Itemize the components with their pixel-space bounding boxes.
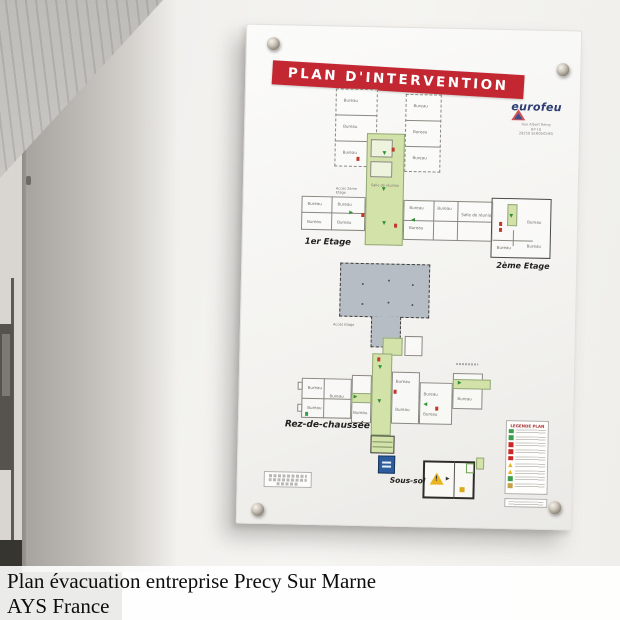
legend-text-bar — [508, 501, 543, 506]
legend-text-bar — [515, 463, 546, 468]
stair-corridor — [476, 457, 484, 469]
caption-bar: Plan évacuation entreprise Precy Sur Mar… — [0, 566, 620, 620]
legend-text-bar — [515, 450, 546, 455]
hazard-warning-icon — [430, 472, 444, 484]
legend-icon — [508, 442, 513, 447]
evac-arrow-icon — [509, 214, 513, 219]
evac-arrow-icon — [353, 395, 357, 400]
warehouse-block — [339, 263, 430, 319]
room-label: Bureau — [527, 244, 541, 248]
legend-title: LEGENDE PLAN — [509, 423, 546, 429]
room-label: Bureau — [344, 99, 358, 103]
room-label: Bureau — [437, 207, 451, 211]
legend-icon — [508, 463, 513, 468]
sign-text-bar — [382, 465, 391, 467]
extinguisher-icon — [435, 407, 438, 411]
access-second-label: Accès 2ème Etage — [336, 186, 364, 195]
room-label: Bureau — [409, 206, 423, 210]
legend-text-bar — [515, 429, 546, 434]
floor-label-first: 1er Etage — [305, 237, 351, 248]
room-label: Bureau — [413, 130, 427, 134]
room-label: Bureau — [337, 220, 351, 224]
room-label: Bureau — [414, 104, 428, 108]
room-label: Bureau — [527, 220, 541, 224]
evac-arrow-icon — [382, 221, 386, 226]
wall-fixture — [26, 176, 31, 185]
legend-reference-box — [504, 498, 547, 508]
evac-arrow-icon — [383, 151, 387, 156]
column-dot — [388, 280, 390, 282]
extinguisher-icon — [394, 390, 397, 394]
evac-arrow-icon — [377, 399, 381, 404]
small-annotation — [456, 363, 478, 365]
caption-subtitle: AYS France — [7, 594, 620, 619]
room-label: Bureau — [353, 411, 367, 415]
legend-text-bar — [514, 477, 545, 482]
document-cartouche — [264, 471, 312, 488]
column-dot — [411, 304, 413, 306]
evac-arrow-icon — [349, 211, 353, 216]
access-floor-label: Accès Etage — [333, 322, 357, 327]
column-dot — [412, 284, 414, 286]
extinguisher-icon — [392, 148, 395, 152]
legend-icon — [509, 429, 514, 434]
photo-scene: PLAN D'INTERVENTION eurofeu Rue Albert R… — [0, 0, 620, 620]
extinguisher-icon — [361, 213, 364, 217]
legend-text-bar — [514, 484, 545, 489]
cartouche-text-bar — [269, 478, 307, 481]
door-swing-icon — [466, 463, 474, 473]
legend-icon — [508, 449, 513, 454]
room-label: Bureau — [307, 202, 321, 206]
legend-icon — [508, 470, 513, 475]
room-label: Bureau — [343, 125, 357, 129]
room-label: Bureau — [308, 386, 322, 390]
column-dot — [362, 283, 364, 285]
room-label: Bureau — [343, 151, 357, 155]
direction-arrow-icon — [446, 477, 450, 482]
room-label: Bureau — [337, 202, 351, 206]
evac-arrow-icon — [382, 187, 386, 192]
room-block — [370, 161, 392, 177]
cartouche-text-bar — [269, 474, 307, 477]
intervention-plan-panel: PLAN D'INTERVENTION eurofeu Rue Albert R… — [236, 24, 582, 531]
meeting-room-label: Salle de réunion — [461, 213, 493, 218]
extinguisher-icon — [394, 224, 397, 228]
exit-stair — [370, 435, 394, 453]
first-aid-icon — [305, 412, 308, 416]
floor-plans: Bureau Bureau Bureau Bureau Bureau Burea… — [237, 25, 581, 530]
legend-text-bar — [515, 456, 546, 461]
column-dot — [361, 303, 363, 305]
floor-label-ground: Rez-de-chaussée — [285, 419, 370, 431]
floor-label-second: 2ème Etage — [496, 261, 550, 271]
legend-box: LEGENDE PLAN — [504, 420, 549, 495]
extinguisher-icon — [499, 222, 502, 226]
evac-arrow-icon — [423, 402, 427, 407]
extinguisher-icon — [356, 157, 359, 161]
room-label: Bureau — [457, 397, 471, 401]
dark-window-inner — [2, 334, 10, 396]
room-label: Bureau — [307, 220, 321, 224]
blue-info-sign — [378, 455, 395, 473]
legend-text-bar — [515, 443, 546, 448]
evac-arrow-icon — [411, 218, 415, 223]
room-label: Bureau — [423, 412, 437, 416]
room-label: Bureau — [497, 246, 511, 250]
floor-label-basement: Sous-sol — [390, 476, 426, 486]
legend-icon — [508, 456, 513, 461]
legend-icon — [508, 483, 513, 488]
extinguisher-icon — [499, 228, 502, 232]
hazard-small-icon — [460, 487, 465, 492]
cartouche-text-bar — [276, 482, 299, 485]
legend-icon — [508, 476, 513, 481]
room-label: Bureau — [307, 406, 321, 410]
room-block — [404, 336, 422, 356]
room-label: Bureau — [409, 226, 423, 230]
evac-arrow-icon — [378, 365, 382, 370]
room-label: Bureau — [424, 392, 438, 396]
sign-text-bar — [382, 461, 391, 463]
evac-arrow-icon — [458, 381, 462, 386]
legend-text-bar — [514, 470, 545, 475]
bay-window — [298, 382, 303, 390]
legend-text-bar — [515, 436, 546, 441]
legend-icon — [509, 436, 514, 441]
room-label: Bureau — [395, 408, 409, 412]
legend-row — [508, 482, 545, 490]
room-label: Bureau — [412, 156, 426, 160]
column-dot — [387, 302, 389, 304]
room-label: Bureau — [396, 380, 410, 384]
extinguisher-icon — [377, 357, 380, 361]
room-label: Bureau — [329, 394, 343, 398]
bay-window — [297, 404, 302, 412]
caption-title: Plan évacuation entreprise Precy Sur Mar… — [7, 569, 620, 594]
